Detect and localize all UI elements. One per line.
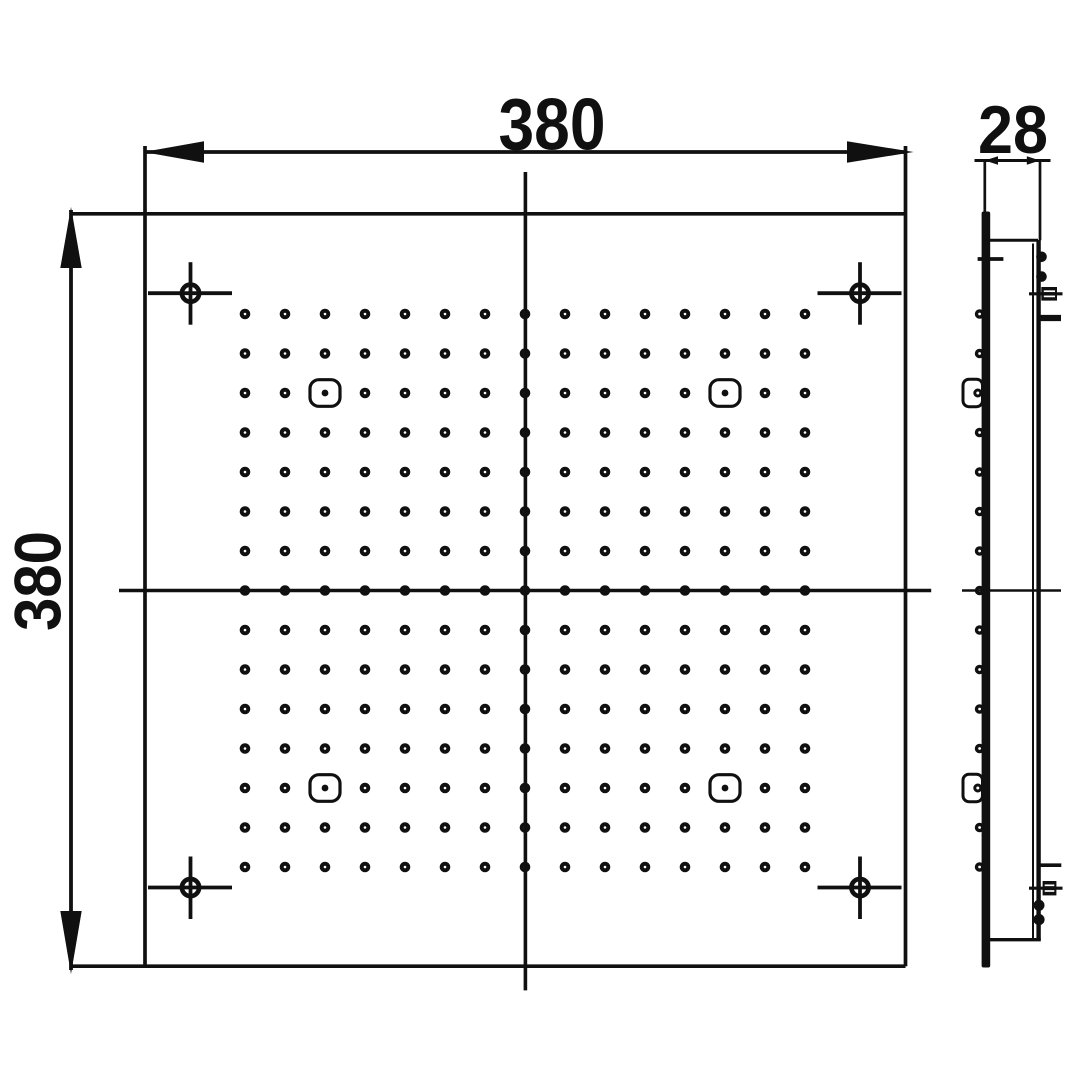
svg-text:380: 380: [1, 531, 75, 631]
svg-text:380: 380: [499, 85, 606, 166]
svg-text:28: 28: [978, 92, 1048, 168]
